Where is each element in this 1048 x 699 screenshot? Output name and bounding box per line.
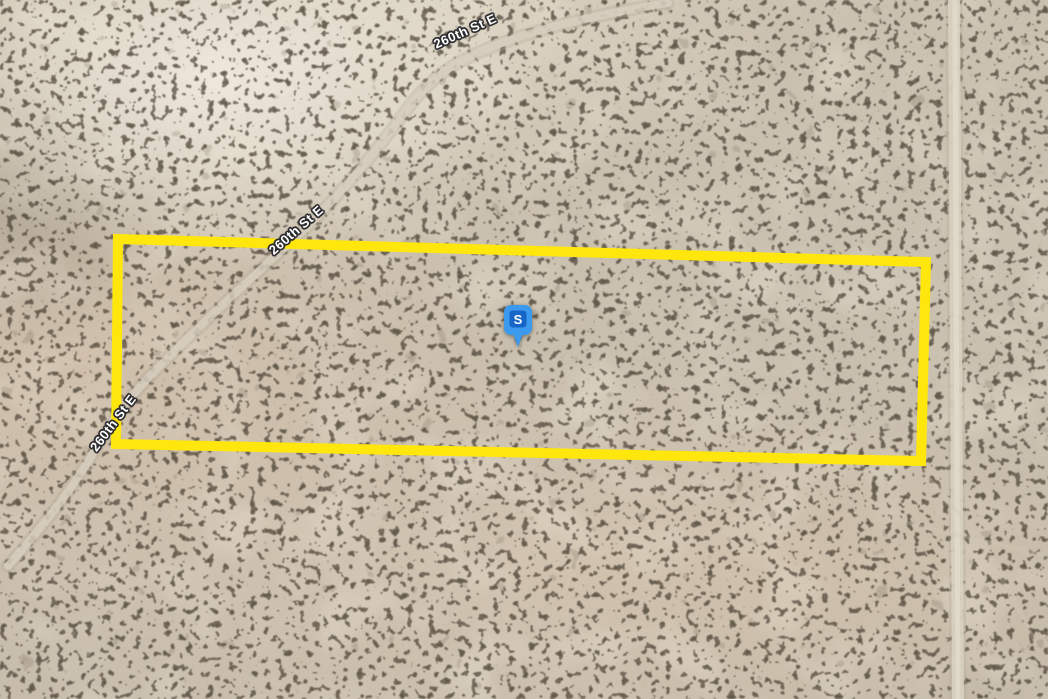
location-marker[interactable]: S bbox=[502, 303, 534, 349]
marker-letter: S bbox=[514, 312, 523, 327]
map-overlay bbox=[0, 0, 1048, 699]
sand-grain-texture bbox=[0, 0, 1048, 699]
graded-road-centerline bbox=[955, 0, 958, 699]
map-viewport[interactable]: 260th St E 260th St E 260th St E S bbox=[0, 0, 1048, 699]
